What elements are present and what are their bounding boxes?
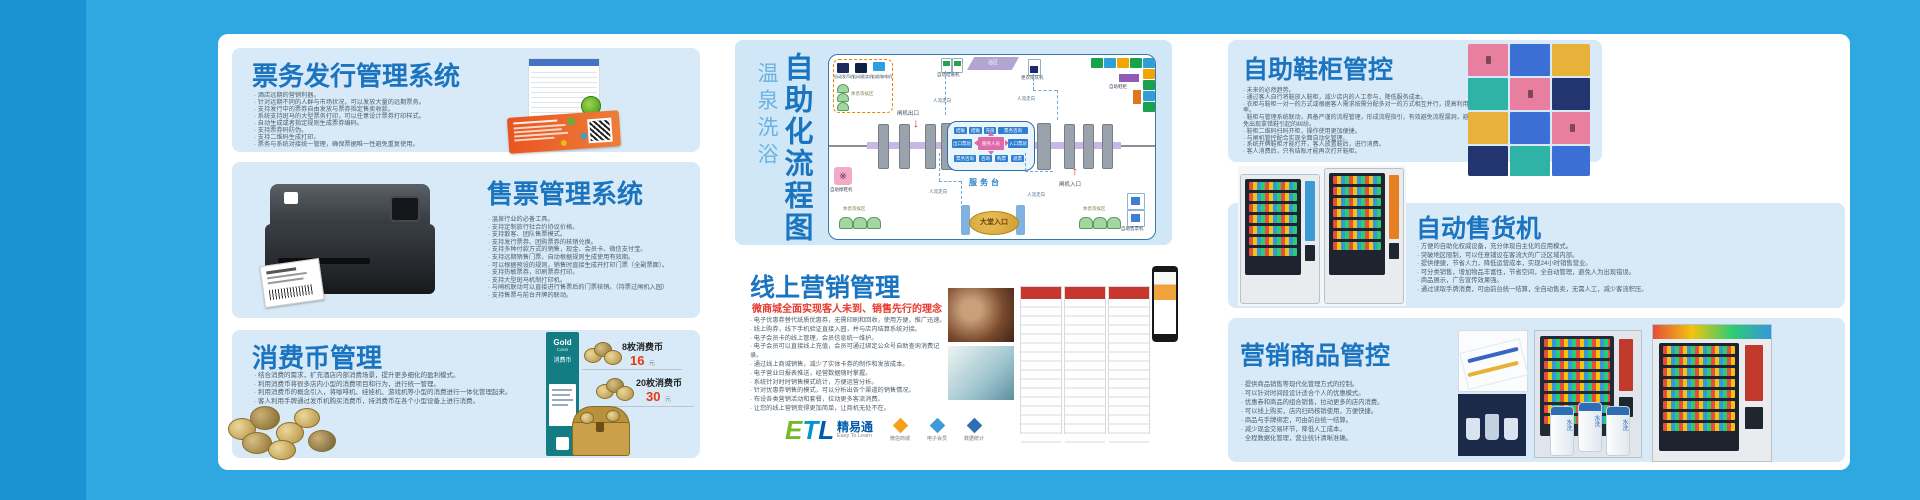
qr-code bbox=[587, 118, 613, 144]
vending-machines-photo bbox=[1238, 166, 1406, 306]
bath-area-label: 浴区 bbox=[988, 60, 998, 66]
people-flow-label: 人流走向 bbox=[929, 190, 947, 195]
ticket-sales-panel: 售票管理系统 温泉行业的必备工具。支持定制旅行社合约协议价格。支持散客、团队售票… bbox=[232, 162, 700, 318]
etl-logo: ETL bbox=[785, 415, 834, 451]
marketing-goods-title: 营销商品管控 bbox=[1240, 336, 1390, 372]
bullet: 支持散客、团队售票模式。 bbox=[488, 231, 693, 239]
bullet: 未来的必然趋势。 bbox=[1243, 88, 1471, 95]
ticket-issuing-title: 票务发行管理系统 bbox=[252, 56, 460, 93]
flow-panel: 温泉洗浴 自助化流程图 结账 结账 充值 票务咨询 出口票验 服务人员 bbox=[735, 40, 1172, 245]
bottle-label: 水洗 bbox=[1607, 419, 1629, 431]
diamond-icon bbox=[929, 418, 945, 434]
island-box: 咨询 bbox=[979, 155, 992, 162]
spa-photo bbox=[948, 288, 1014, 342]
bullet: 支持远期销售门票，自动根据规则生成使用有效期。 bbox=[488, 254, 693, 262]
bullet: 支持多种付款方式的销售，现金、会员卡、微信支付宝。 bbox=[488, 246, 693, 254]
coin-price-unit: 元 bbox=[665, 397, 671, 403]
bullet: 衣柜与鞋柜一对一的方式或根据客人需求按需分配多对一的方式相互并行，提高利用率。 bbox=[1243, 102, 1471, 116]
machines-area: 自动发币机 自动贩卖机 自助咖啡机 休息等候区 bbox=[833, 59, 893, 113]
bullet: 支持票券码防伪。 bbox=[254, 127, 516, 134]
coin-price-row-2: 20枚消费币 30 元 bbox=[594, 376, 696, 408]
bullet: 支持售票与前台开牌的联动。 bbox=[488, 292, 693, 300]
rest-area-label: 休息等候区 bbox=[851, 92, 874, 97]
gate-pillar bbox=[899, 124, 910, 169]
bath-area: 浴区 bbox=[967, 57, 1019, 70]
bullet: 减少现金交易环节，降低人工成本。 bbox=[1241, 425, 1436, 434]
swabs-photo bbox=[1458, 330, 1528, 392]
online-marketing-panel: 线上营销管理 微商城全面实现客人未到、销售先行的理念 电子优惠券替代纸质优惠券，… bbox=[735, 255, 1178, 458]
poster: 票务发行管理系统 酒店远期的营销利器。针对远期不同的人群与市场状况，可以发放大量… bbox=[0, 0, 1920, 500]
flow-diagram: 结账 结账 充值 票务咨询 出口票验 服务人员 入口票验 票务咨询 咨询 购票 … bbox=[828, 54, 1156, 240]
bullet: 电子会员可以直接线上充值，会员可通过绑定公众号自助查询消费记录。 bbox=[750, 343, 950, 361]
coin-mgmt-panel: 消费币管理 结合消费的需求，扩充酒店内部消费场景，提升更多细化的盈利模式。利用消… bbox=[232, 330, 700, 458]
vending-label: 自动贩卖机 bbox=[853, 75, 873, 79]
badge-wechat-shop: 微信商城 bbox=[883, 420, 917, 442]
wash-bottles-photo: 水洗 水洗 水洗 bbox=[1548, 400, 1634, 458]
bullet: 电子营业日报表推送，经营数据随时掌握。 bbox=[750, 370, 950, 379]
bullet: 突破地区限制，可以任意铺设在客流大的广泛区域内部。 bbox=[1417, 252, 1667, 261]
printer-label bbox=[259, 258, 324, 308]
checkout-label: 自动结账机 bbox=[937, 73, 960, 78]
hall-entrance: 大堂入口 bbox=[969, 211, 1019, 235]
gate-pillar bbox=[878, 124, 889, 169]
bullet: 温泉行业的必备工具。 bbox=[488, 216, 693, 224]
bullet: 提供便捷，节省人力，降低运营成本，实现24小时销售营业。 bbox=[1417, 260, 1667, 269]
etl-letter-l: L bbox=[818, 415, 834, 445]
online-marketing-bullets: 电子优惠券替代纸质优惠券，无需印刷和回收，使用方便，推广迅速。线上购券，线下手机… bbox=[750, 317, 950, 414]
etl-letter-t: T bbox=[802, 415, 818, 445]
rest-area-label: 休息等候区 bbox=[1083, 207, 1106, 212]
phone-mockup bbox=[1152, 266, 1178, 342]
app-screenshot bbox=[1064, 286, 1106, 434]
bottle-label: 水洗 bbox=[1579, 415, 1601, 427]
badge-label: 微信商城 bbox=[883, 435, 917, 442]
bullet: 全程数据化管理，营业统计清晰准确。 bbox=[1241, 434, 1436, 443]
shoe-cabinet-bullets: 未来的必然趋势。通过客人自行将鞋放入鞋柜，减少店内的人工参与，降低服务成本。衣柜… bbox=[1243, 88, 1471, 156]
app-screenshot bbox=[1108, 286, 1150, 434]
coin-price-value: 30 bbox=[646, 389, 660, 404]
ticket-sales-title: 售票管理系统 bbox=[487, 174, 643, 211]
card-brand-sub: Coins bbox=[546, 347, 579, 352]
bullet: 商品展示，广告宣传效果强。 bbox=[1417, 277, 1667, 286]
bullet: 可以针对时间段设计适合个人的优惠模式。 bbox=[1241, 389, 1436, 398]
people-flow-label: 人流走向 bbox=[1017, 97, 1035, 102]
island-box: 票务咨询 bbox=[998, 127, 1028, 134]
bullet: 商品与手牌绑定，可由前台统一结算。 bbox=[1241, 416, 1436, 425]
ticket-issuing-panel: 票务发行管理系统 酒店远期的营销利器。针对远期不同的人群与市场状况，可以发放大量… bbox=[232, 48, 700, 152]
coin-dispenser-icon bbox=[837, 63, 849, 73]
printer-photo bbox=[240, 166, 475, 314]
exit-arrow-icon: ↓ bbox=[913, 117, 919, 129]
bullet: 系统支持斑马的大型票务打印，可以任意设计票券打印样式。 bbox=[254, 113, 516, 120]
badge-e-member: 电子会员 bbox=[920, 420, 954, 442]
cube-icon bbox=[966, 418, 982, 434]
bullet: 通过客人自行将鞋放入鞋柜，减少店内的人工参与，降低服务成本。 bbox=[1243, 95, 1471, 102]
vending-title: 自动售货机 bbox=[1416, 209, 1541, 245]
people-flow-label: 人流走向 bbox=[1027, 193, 1045, 198]
gate-pillar bbox=[1064, 124, 1075, 169]
online-marketing-title: 线上营销管理 bbox=[750, 268, 900, 304]
flow-title: 自助化流程图 bbox=[775, 52, 817, 244]
marketing-goods-panel: 营销商品管控 提供商品销售等现代化管理方式的控制。可以针对时间段设计适合个人的优… bbox=[1228, 318, 1845, 462]
bullet: 鞋柜与管理系统联动，具备严谨的流程管理，形成流程指引，有效避免流程漏洞，避免出现… bbox=[1243, 115, 1471, 129]
exit-check-box: 出口票验 bbox=[952, 139, 972, 148]
bullet: 结合消费的需求，扩充酒店内部消费场景，提升更多细化的盈利模式。 bbox=[254, 372, 539, 381]
app-screenshot bbox=[1020, 286, 1062, 434]
gate-pillar bbox=[925, 124, 936, 169]
card-brand: Gold bbox=[546, 338, 579, 347]
checkout-kiosk bbox=[941, 58, 952, 73]
bullet: 自动生成或者指定规则生成票券编码。 bbox=[254, 120, 516, 127]
tall-vending-photo bbox=[1652, 324, 1772, 462]
badge-data-stats: 数据统计 bbox=[957, 420, 991, 442]
treasure-chest bbox=[572, 406, 630, 456]
ticket-sales-bullets: 温泉行业的必备工具。支持定制旅行社合约协议价格。支持散客、团队售票模式。支持发行… bbox=[488, 216, 693, 300]
gate-pillar bbox=[1102, 124, 1113, 169]
shoe-polish-label: 自助擦鞋机 bbox=[830, 188, 853, 193]
badge-label: 数据统计 bbox=[957, 435, 991, 442]
checkout-kiosk bbox=[952, 58, 963, 73]
card-name: 消费币 bbox=[546, 355, 579, 364]
coin-price-row-1: 8枚消费币 16 元 bbox=[582, 338, 684, 370]
bullet: 针对远期不同的人群与市场状况，可以发放大量的远期票务。 bbox=[254, 99, 516, 106]
hall-entrance-label: 大堂入口 bbox=[980, 219, 1008, 226]
service-island: 结账 结账 充值 票务咨询 出口票验 服务人员 入口票验 票务咨询 咨询 购票 … bbox=[947, 121, 1035, 171]
coins-photo bbox=[224, 388, 342, 458]
entry-check-box: 入口票验 bbox=[1008, 139, 1028, 148]
island-box: 购票 bbox=[995, 155, 1008, 162]
queue-kiosk bbox=[1028, 59, 1041, 76]
service-desk-label: 服务台 bbox=[969, 179, 1002, 188]
badge-label: 电子会员 bbox=[920, 435, 954, 442]
bullet: 电子优惠券替代纸质优惠券，无需印刷和回收，使用方便，推广迅速。 bbox=[750, 317, 950, 326]
vending-machine-icon bbox=[855, 63, 867, 73]
entry-arrow-icon: ↑ bbox=[1072, 165, 1078, 177]
bullet: 支持二维码生成打印。 bbox=[254, 134, 516, 141]
shoe-cabinet-title: 自助鞋柜管控 bbox=[1243, 50, 1393, 86]
bullet: 线上购券，线下手机验证直接入园，并与店内结算系统对接。 bbox=[750, 326, 950, 335]
etl-letter-e: E bbox=[785, 415, 802, 445]
coin-price-value: 16 bbox=[630, 353, 644, 368]
etl-tagline: Easy To Learn bbox=[837, 433, 872, 439]
coin-price-unit: 元 bbox=[649, 361, 655, 367]
coffee-machine-icon bbox=[873, 62, 885, 71]
coin-dispenser-label: 自动发币机 bbox=[834, 75, 854, 79]
bath-photo bbox=[948, 346, 1014, 400]
ticket-machine-icon bbox=[1127, 210, 1145, 227]
staff-box: 服务人员 bbox=[978, 137, 1004, 150]
island-box: 票务咨询 bbox=[954, 155, 976, 162]
diamond-icon bbox=[892, 418, 908, 434]
bullet: 布设各类营销活动和套餐，拉动更多客流消费。 bbox=[750, 396, 950, 405]
bullet: 通过线上商城销售，减少了实体卡券的制作和发放成本。 bbox=[750, 361, 950, 370]
bullet: 酒店远期的营销利器。 bbox=[254, 92, 516, 99]
gate-pillar bbox=[1037, 123, 1051, 170]
shoe-locker-label: 自助鞋柜 bbox=[1109, 85, 1127, 90]
rest-area-label: 休息等候区 bbox=[843, 207, 866, 212]
island-box: 结账 bbox=[969, 127, 982, 134]
ticket-machine-label: 自助售票机 bbox=[1121, 227, 1144, 232]
ticket-card bbox=[507, 110, 621, 154]
shoe-locker-photo bbox=[1468, 44, 1590, 176]
bullet: 支持发行中的票券自由发放与票券指定售卖收款。 bbox=[254, 106, 516, 113]
online-marketing-subtitle: 微商城全面实现客人未到、销售先行的理念 bbox=[752, 300, 942, 315]
bullet: 客人消费后，只有结账才能再次打开鞋柜。 bbox=[1243, 149, 1471, 156]
coin-mgmt-title: 消费币管理 bbox=[252, 338, 382, 375]
island-box: 退票 bbox=[1011, 155, 1024, 162]
coffee-label: 自助咖啡机 bbox=[872, 75, 892, 79]
bullet: 优惠券和商品的组合销售，拉动更多的店内消费。 bbox=[1241, 398, 1436, 407]
island-box: 结账 bbox=[954, 127, 967, 134]
bullet: 与闸机联动可以直接进行售票后的门票核销。（持票过闸机入园） bbox=[488, 284, 693, 292]
shoe-polish-icon: ※ bbox=[834, 167, 852, 185]
bullet: 针对优惠券销售的模式，可以分析出各个渠道的销售情况。 bbox=[750, 387, 950, 396]
ticket-machine-icon bbox=[1127, 193, 1145, 210]
bullet: 方便的自助化权威设备，充分体现自主化的应用模式。 bbox=[1417, 243, 1667, 252]
cups-photo bbox=[1458, 394, 1526, 456]
gate-pillar bbox=[1083, 124, 1094, 169]
bullet: 可以线上购买，店内扫码核销使用，方便快捷。 bbox=[1241, 407, 1436, 416]
bullet: 鞋柜二维码扫码开柜，操作使用更加便捷。 bbox=[1243, 129, 1471, 136]
left-blue-strip bbox=[0, 0, 86, 500]
gate-entry-label: 闸机入口 bbox=[1059, 182, 1081, 188]
people-flow-label: 人流走向 bbox=[933, 99, 951, 104]
bullet: 让您的线上营销变得更加简单，让商机无处不在。 bbox=[750, 405, 950, 414]
bullet: 通过读取手牌消费，可由前台统一结算，全自动售卖，无需人工，减少客流积压。 bbox=[1417, 286, 1667, 295]
bullet: 提供商品销售等现代化管理方式的控制。 bbox=[1241, 380, 1436, 389]
marketing-goods-bullets: 提供商品销售等现代化管理方式的控制。可以针对时间段设计适合个人的优惠模式。优惠券… bbox=[1241, 380, 1436, 443]
bullet: 票务与系统对接统一管理，确保票据唯一性避免重复使用。 bbox=[254, 141, 516, 148]
vending-bullets: 方便的自助化权威设备，充分体现自主化的应用模式。突破地区限制，可以任意铺设在客流… bbox=[1417, 243, 1667, 295]
bullet: 支持热敏票券，印刷票券打印。 bbox=[488, 269, 693, 277]
ticket-issuing-bullets: 酒店远期的营销利器。针对远期不同的人群与市场状况，可以发放大量的远期票务。支持发… bbox=[254, 92, 516, 148]
bottle-label: 水洗 bbox=[1551, 419, 1573, 431]
